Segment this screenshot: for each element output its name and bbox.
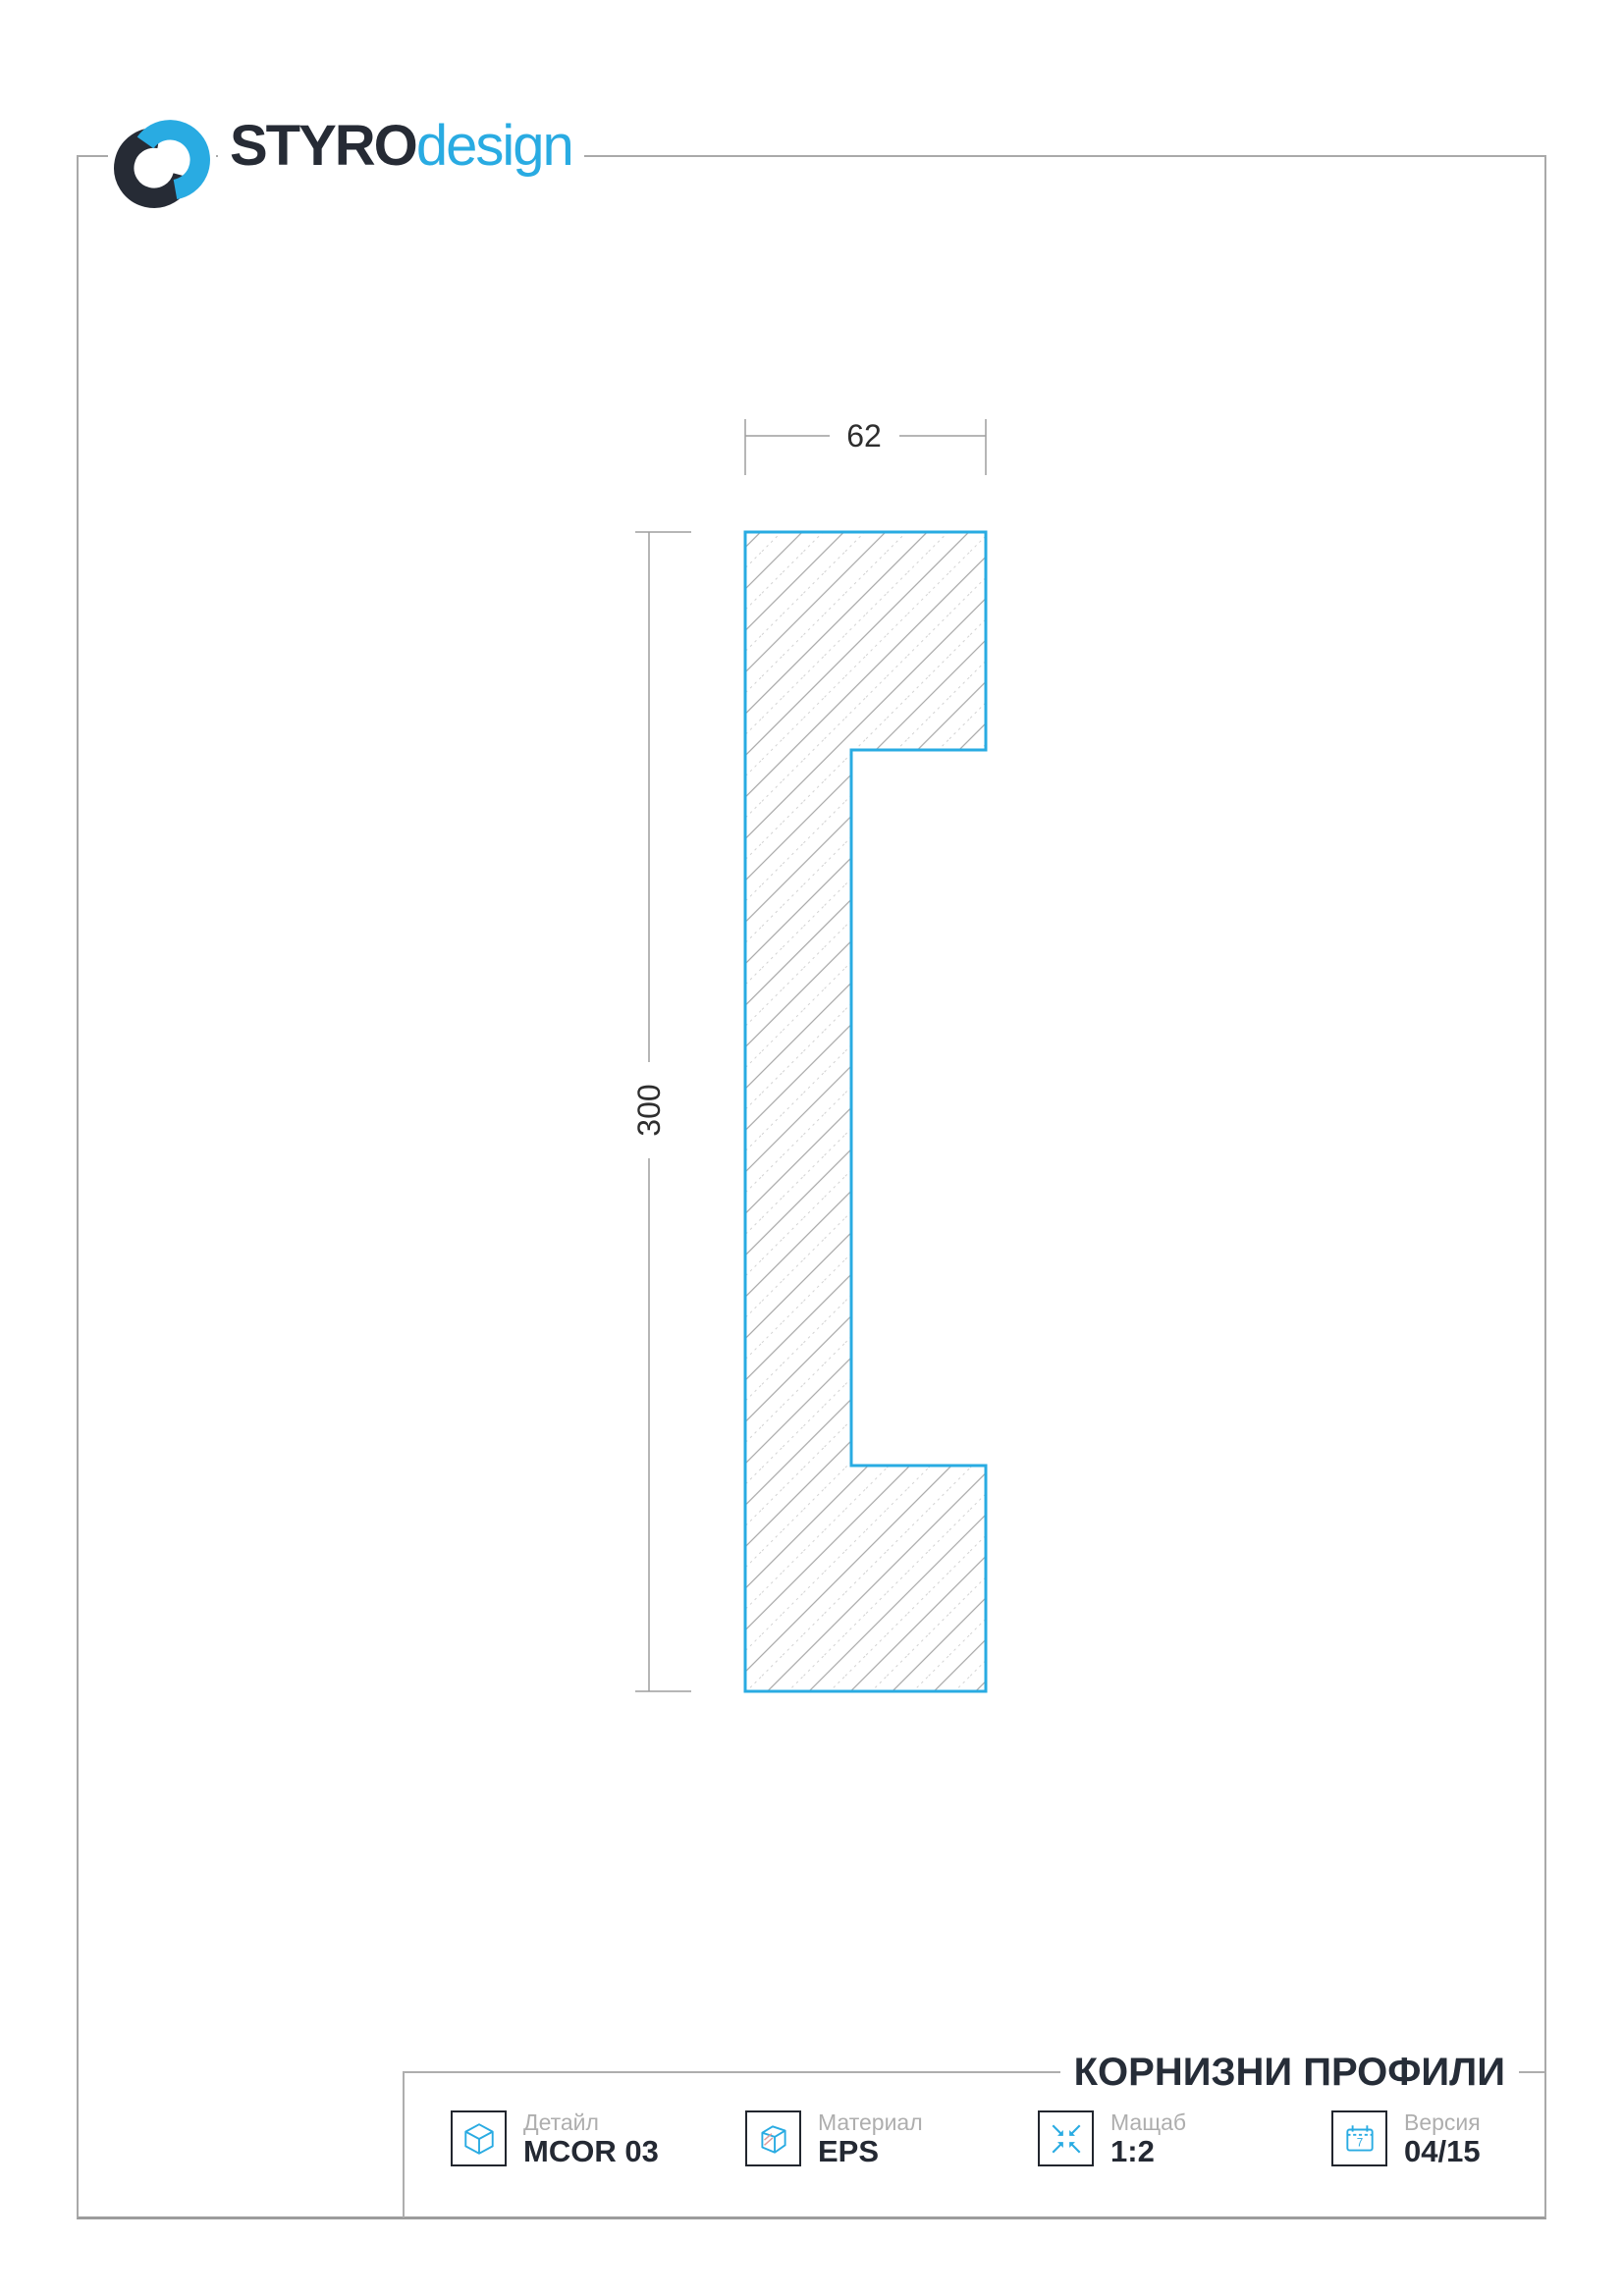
material-icon	[755, 2120, 792, 2158]
detail-icon-box	[451, 2110, 507, 2166]
scale-icon-box	[1038, 2110, 1094, 2166]
version-value: 04/15	[1404, 2135, 1481, 2168]
brand-primary: STYRO	[230, 114, 416, 178]
field-scale: Мащаб 1:2	[1038, 2110, 1186, 2168]
material-label: Материал	[818, 2110, 923, 2135]
brand-secondary: design	[416, 114, 572, 178]
width-dimension-text: 62	[846, 418, 882, 454]
profile-shape	[745, 532, 986, 1691]
version-label: Версия	[1404, 2110, 1481, 2135]
title-block-left-line	[403, 2071, 405, 2217]
material-value: EPS	[818, 2135, 923, 2168]
styrodesign-logo-icon	[108, 114, 216, 214]
scale-value: 1:2	[1110, 2135, 1186, 2168]
sheet: STYROdesign 62 300 КОРНИЗ	[0, 0, 1623, 2296]
field-version: 7 Версия 04/15	[1331, 2110, 1481, 2168]
field-material: Материал EPS	[745, 2110, 923, 2168]
brand-text: STYROdesign	[218, 118, 584, 175]
detail-value: MCOR 03	[523, 2135, 659, 2168]
calendar-day-text: 7	[1356, 2136, 1362, 2149]
profile-drawing: 62 300	[550, 373, 1041, 1747]
calendar-icon: 7	[1341, 2120, 1379, 2158]
cube-icon	[460, 2120, 498, 2158]
field-detail: Детайл MCOR 03	[451, 2110, 659, 2168]
material-icon-box	[745, 2110, 801, 2166]
version-icon-box: 7	[1331, 2110, 1387, 2166]
height-dimension-text: 300	[631, 1084, 667, 1136]
page-title: КОРНИЗНИ ПРОФИЛИ	[1060, 2051, 1519, 2094]
detail-label: Детайл	[523, 2110, 659, 2135]
scale-label: Мащаб	[1110, 2110, 1186, 2135]
scale-icon	[1048, 2120, 1085, 2158]
s-mark-icon	[112, 114, 212, 214]
